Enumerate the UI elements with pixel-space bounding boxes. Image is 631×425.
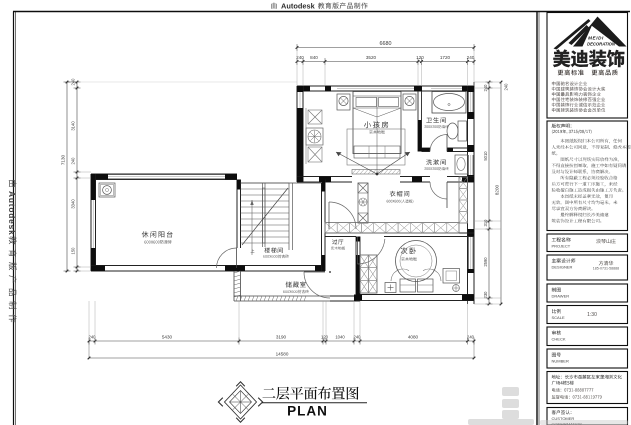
svg-text:DESIGNER: DESIGNER <box>552 265 573 270</box>
svg-text:14580: 14580 <box>276 352 289 357</box>
svg-text:240: 240 <box>504 83 509 91</box>
svg-text:120: 120 <box>416 55 424 60</box>
svg-text:120: 120 <box>321 335 329 340</box>
svg-text:6680: 6680 <box>380 41 392 47</box>
svg-text:5430: 5430 <box>162 335 173 340</box>
svg-text:3340: 3340 <box>71 199 76 209</box>
svg-text:3520: 3520 <box>366 55 377 60</box>
svg-text:840: 840 <box>310 55 318 60</box>
svg-text:PLAN: PLAN <box>287 404 328 419</box>
svg-text:MEIDI: MEIDI <box>588 36 604 41</box>
svg-text:NUMBER: NUMBER <box>552 359 569 364</box>
svg-text:240: 240 <box>467 55 475 60</box>
svg-text:CHECK: CHECK <box>552 337 566 342</box>
svg-text:Autodesk: Autodesk <box>281 2 316 11</box>
svg-text:2590: 2590 <box>483 257 488 267</box>
svg-text:1040: 1040 <box>335 335 345 340</box>
svg-text:5010: 5010 <box>483 151 488 161</box>
svg-text:240: 240 <box>71 157 76 165</box>
svg-text:185-0731-58888: 185-0731-58888 <box>593 267 619 271</box>
svg-text:230: 230 <box>483 291 488 299</box>
svg-text:DECORATION: DECORATION <box>587 42 616 47</box>
svg-text:240: 240 <box>71 78 76 86</box>
svg-text:240: 240 <box>483 84 488 92</box>
svg-text:Autodesk: Autodesk <box>7 191 17 236</box>
svg-text:3140: 3140 <box>71 121 76 131</box>
svg-text:1:30: 1:30 <box>587 312 597 318</box>
svg-text:310: 310 <box>483 219 488 227</box>
svg-text:7130: 7130 <box>61 154 66 165</box>
svg-text:1720: 1720 <box>440 55 451 60</box>
svg-text:DRAWER: DRAWER <box>552 294 570 299</box>
svg-text:PROJECT: PROJECT <box>552 244 571 249</box>
svg-text:240: 240 <box>467 335 475 340</box>
svg-text:8200: 8200 <box>495 184 500 195</box>
svg-text:240: 240 <box>296 55 304 60</box>
svg-text:3190: 3190 <box>276 335 287 340</box>
svg-text:4080: 4080 <box>408 335 419 340</box>
svg-text:150: 150 <box>71 247 76 255</box>
svg-text:SCALE: SCALE <box>552 315 565 320</box>
